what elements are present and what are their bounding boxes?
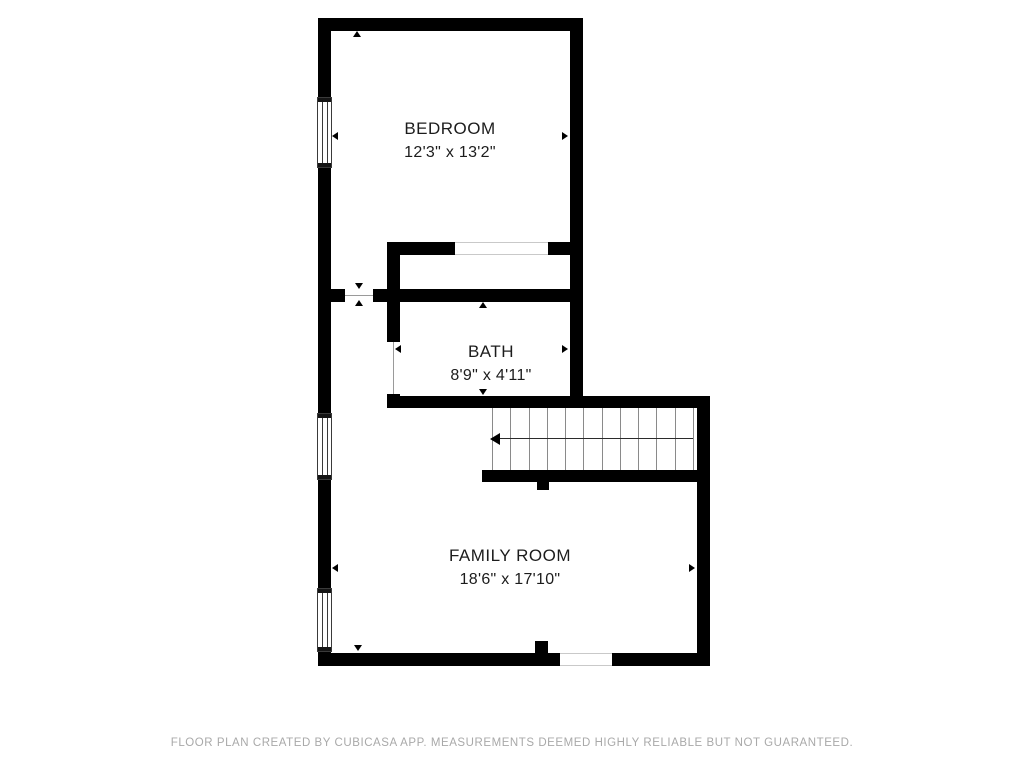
stair-step-line <box>583 408 584 470</box>
window-mullion <box>327 593 328 647</box>
wall-bottom-left <box>318 653 560 666</box>
opening-marker-below-icon <box>355 300 363 306</box>
wall-bottom-right <box>612 653 710 666</box>
footer-disclaimer: FLOOR PLAN CREATED BY CUBICASA APP. MEAS… <box>0 737 1024 749</box>
opening-hallway-passage <box>345 295 373 296</box>
wall-bath-left-upper <box>387 242 400 342</box>
room-dimensions: 12'3" x 13'2" <box>340 141 560 165</box>
dimension-arrow-left-family-icon <box>332 564 338 572</box>
window-family-left <box>317 588 332 652</box>
window-mullion <box>322 593 323 647</box>
floorplan-canvas: BEDROOM 12'3" x 13'2" BATH 8'9" x 4'11" … <box>0 0 1024 768</box>
dimension-arrow-right-family-icon <box>689 564 695 572</box>
room-name: BATH <box>381 339 601 364</box>
room-name: BEDROOM <box>340 116 560 141</box>
window-mullion <box>322 418 323 475</box>
wall-stairs-top <box>387 396 710 408</box>
stairs-direction-line <box>498 438 693 439</box>
stairs-direction-arrow-icon <box>490 433 500 445</box>
wall-right-lower <box>697 396 710 666</box>
opening-closet-doorway <box>455 242 548 255</box>
room-dimensions: 8'9" x 4'11" <box>381 364 601 388</box>
stair-step-line <box>565 408 566 470</box>
stair-step-line <box>547 408 548 470</box>
opening-marker-above-icon <box>355 283 363 289</box>
room-name: FAMILY ROOM <box>400 543 620 568</box>
stair-step-line <box>675 408 676 470</box>
window-mullion <box>322 102 323 163</box>
room-label-family-room: FAMILY ROOM 18'6" x 17'10" <box>400 543 620 592</box>
wall-stub-above-bottom <box>535 641 548 653</box>
stair-step-line <box>656 408 657 470</box>
dimension-arrow-bottom-family-icon <box>354 645 362 651</box>
stair-step-line <box>602 408 603 470</box>
window-mullion <box>327 418 328 475</box>
stair-step-line <box>638 408 639 470</box>
opening-entry-doorway <box>560 653 612 666</box>
wall-stub-below-stairs <box>537 482 549 490</box>
room-label-bedroom: BEDROOM 12'3" x 13'2" <box>340 116 560 165</box>
room-dimensions: 18'6" x 17'10" <box>400 568 620 592</box>
wall-bedroom-bottom-right <box>548 242 583 255</box>
dimension-arrow-left-bedroom-icon <box>332 132 338 140</box>
dimension-arrow-right-bedroom-icon <box>562 132 568 140</box>
stair-step-line <box>510 408 511 470</box>
wall-bath-top <box>373 289 583 302</box>
wall-stairs-bottom <box>482 470 710 482</box>
room-label-bath: BATH 8'9" x 4'11" <box>381 339 601 388</box>
stair-step-line <box>693 408 694 470</box>
stair-step-line <box>620 408 621 470</box>
window-bedroom-left <box>317 97 332 168</box>
stair-step-line <box>529 408 530 470</box>
dimension-arrow-top-bedroom-icon <box>353 31 361 37</box>
window-hall-left <box>317 413 332 480</box>
window-mullion <box>327 102 328 163</box>
dimension-arrow-top-bath-icon <box>479 302 487 308</box>
wall-bedroom-top <box>318 18 583 31</box>
stairs-steps <box>492 408 694 470</box>
wall-hallway-stub-left <box>331 289 345 302</box>
dimension-arrow-bottom-bath-icon <box>479 389 487 395</box>
